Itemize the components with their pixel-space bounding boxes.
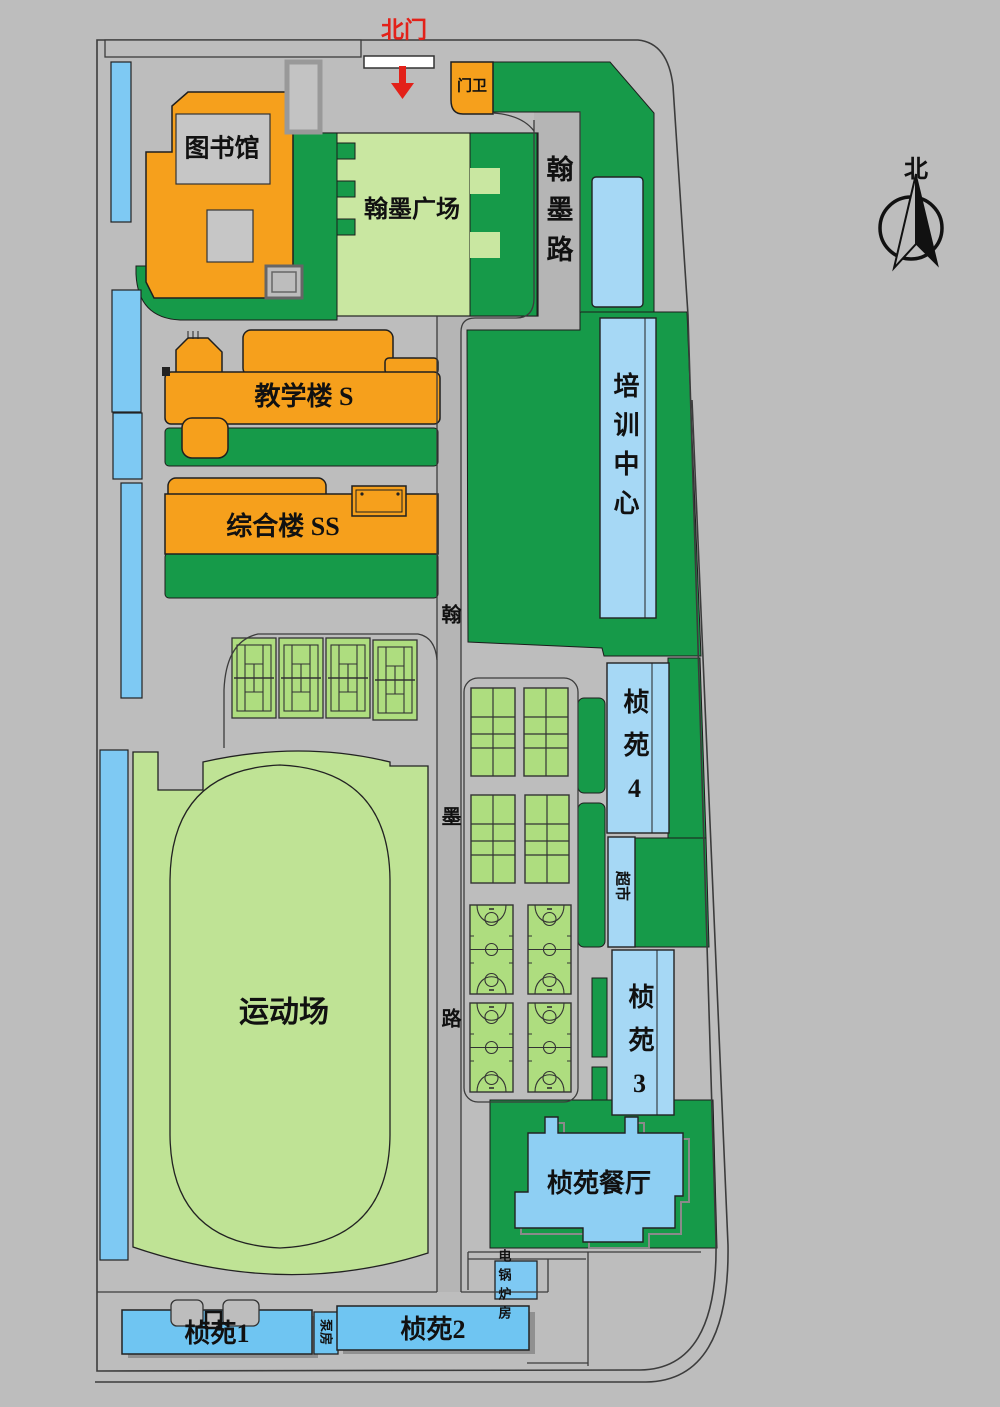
campus-map: 北门 门卫 图书馆 翰墨广场 翰墨路 翰墨路 教学楼 S 综合楼 SS 培训中心… (0, 0, 1000, 1407)
guard-house-label: 门卫 (457, 80, 487, 95)
zhenyuan1-label: 桢苑1 (184, 1321, 249, 1347)
boiler-room-label: 电锅炉房 (498, 1249, 511, 1325)
gate-arrow-icon (399, 66, 406, 83)
teaching-detail (162, 367, 170, 376)
compass-north-label: 北 (904, 158, 928, 182)
dining-hall-label: 桢苑餐厅 (547, 1171, 651, 1197)
sports-field-label: 运动场 (239, 998, 329, 1028)
library-label: 图书馆 (184, 137, 259, 162)
north-gate-label: 北门 (381, 19, 427, 42)
hanmo-road-east-label: 翰墨路 (544, 155, 571, 275)
annex-dot (360, 492, 363, 495)
hanmo-road-center-label: 翰墨路 (439, 604, 459, 1210)
campus-map-canvas (0, 0, 1000, 1407)
zhenyuan3-label: 桢苑3 (626, 983, 652, 1115)
training-center-label: 培训中心 (611, 372, 637, 528)
annex-dot (396, 492, 399, 495)
ne-blue-building (592, 177, 643, 307)
zhenyuan2-label: 桢苑2 (400, 1317, 465, 1343)
pump-room-label: 泵房 (320, 1319, 333, 1345)
plaza-label: 翰墨广场 (364, 198, 460, 222)
comprehensive-building-label: 综合楼 SS (226, 514, 339, 540)
teaching-building-label: 教学楼 S (255, 384, 354, 410)
supermarket-label: 超市 (614, 871, 629, 901)
zhenyuan4-label: 桢苑4 (621, 688, 647, 820)
teaching-building-shape (243, 330, 393, 376)
